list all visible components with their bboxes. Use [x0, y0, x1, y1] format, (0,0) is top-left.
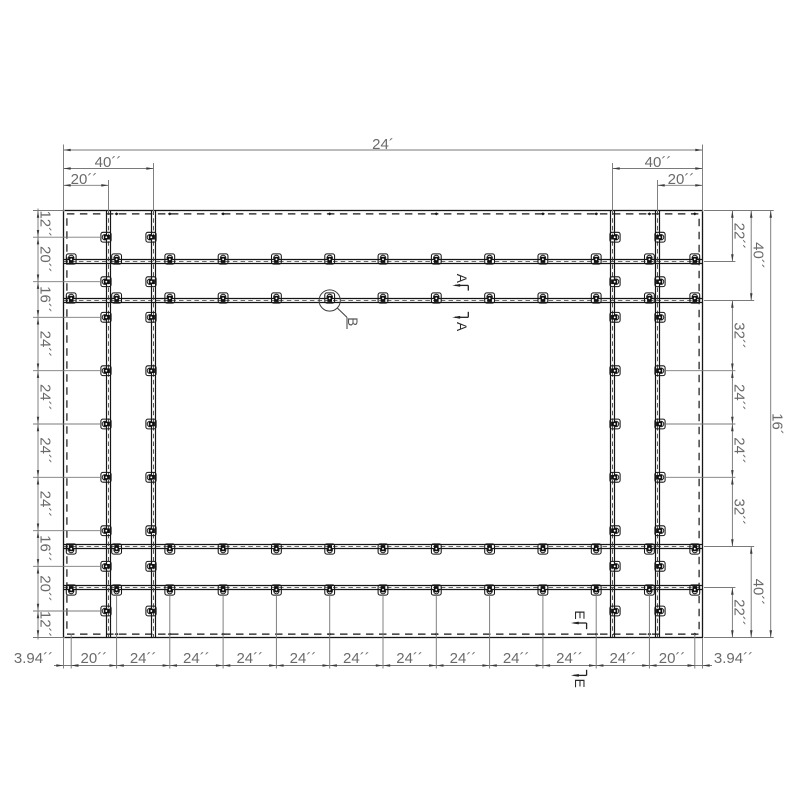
svg-text:12´´: 12´´	[37, 611, 54, 638]
svg-text:20´´: 20´´	[37, 246, 54, 273]
svg-text:32´´: 32´´	[731, 499, 748, 526]
svg-text:A: A	[454, 322, 469, 332]
svg-text:16´: 16´	[768, 413, 785, 435]
svg-text:3.94´´: 3.94´´	[14, 650, 53, 667]
svg-text:20´´: 20´´	[81, 650, 108, 667]
svg-text:24´´: 24´´	[290, 650, 317, 667]
svg-text:24´´: 24´´	[37, 437, 54, 464]
svg-text:24´´: 24´´	[556, 650, 583, 667]
svg-text:40´´: 40´´	[645, 154, 672, 171]
svg-text:24´´: 24´´	[183, 650, 210, 667]
svg-text:24´´: 24´´	[236, 650, 263, 667]
svg-text:24´´: 24´´	[731, 384, 748, 411]
svg-text:24´´: 24´´	[731, 437, 748, 464]
svg-text:24´´: 24´´	[343, 650, 370, 667]
svg-text:24´´: 24´´	[609, 650, 636, 667]
svg-text:32´´: 32´´	[731, 322, 748, 349]
svg-text:E: E	[572, 610, 587, 619]
svg-text:16´´: 16´´	[37, 286, 54, 313]
svg-text:40´´: 40´´	[749, 579, 766, 606]
svg-text:22´´: 22´´	[731, 599, 748, 626]
svg-text:24´´: 24´´	[503, 650, 530, 667]
svg-text:24´´: 24´´	[130, 650, 157, 667]
svg-text:E: E	[572, 679, 587, 688]
svg-text:24´´: 24´´	[37, 491, 54, 518]
svg-text:22´´: 22´´	[731, 223, 748, 250]
svg-text:16´´: 16´´	[37, 535, 54, 562]
svg-text:40´´: 40´´	[749, 242, 766, 269]
svg-text:A: A	[454, 274, 469, 284]
svg-text:3.94´´: 3.94´´	[714, 650, 753, 667]
svg-text:24´´: 24´´	[37, 331, 54, 358]
svg-text:40´´: 40´´	[95, 154, 122, 171]
svg-text:20´´: 20´´	[668, 171, 695, 188]
svg-text:B: B	[345, 317, 360, 326]
svg-text:24´: 24´	[372, 136, 394, 153]
svg-text:24´´: 24´´	[37, 384, 54, 411]
svg-text:24´´: 24´´	[450, 650, 477, 667]
svg-text:20´´: 20´´	[659, 650, 686, 667]
svg-text:24´´: 24´´	[396, 650, 423, 667]
svg-text:20´´: 20´´	[71, 171, 98, 188]
svg-text:20´´: 20´´	[36, 575, 53, 602]
svg-text:12´´: 12´´	[37, 210, 54, 237]
